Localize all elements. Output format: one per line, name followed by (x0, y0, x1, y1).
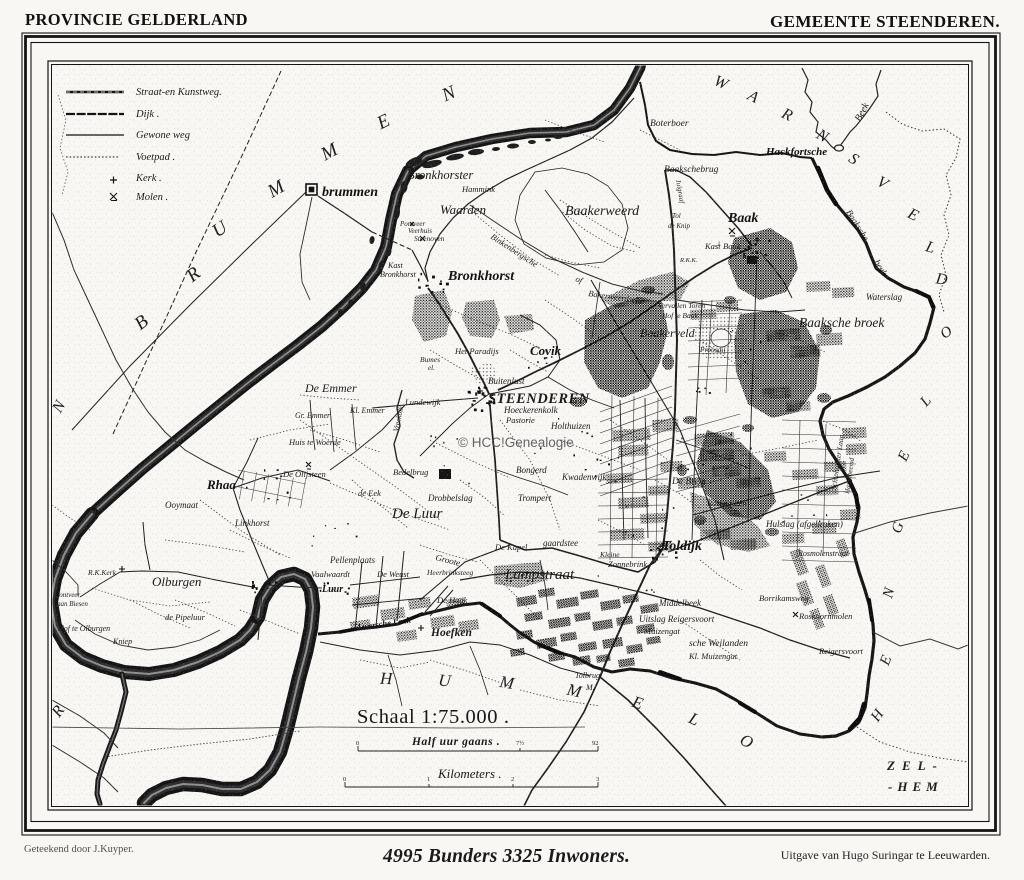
svg-text:GEMEENTE STEENDEREN.: GEMEENTE STEENDEREN. (770, 12, 1000, 31)
svg-text:Uitgave van Hugo Suringar te L: Uitgave van Hugo Suringar te Leeuwarden. (781, 848, 990, 862)
svg-text:Geteekend door J.Kuyper.: Geteekend door J.Kuyper. (24, 844, 134, 855)
svg-text:4995 Bunders 3325 Inwoners.: 4995 Bunders 3325 Inwoners. (382, 846, 630, 867)
svg-text:PROVINCIE GELDERLAND: PROVINCIE GELDERLAND (25, 10, 248, 29)
